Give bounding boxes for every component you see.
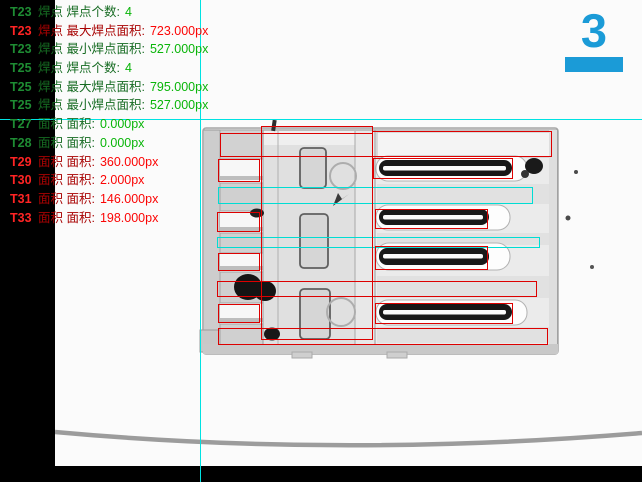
metric-label: 面积 面积: — [38, 211, 95, 225]
tool-id: T28 — [10, 134, 38, 153]
metric-value: 795.000px — [150, 80, 208, 94]
metric-label: 焊点 焊点个数: — [38, 5, 120, 19]
red-roi-box[interactable] — [218, 328, 548, 345]
result-line: T33面积 面积:198.000px — [10, 209, 310, 228]
metric-value: 4 — [125, 5, 132, 19]
tool-id: T23 — [10, 22, 38, 41]
result-line: T25焊点 焊点个数:4 — [10, 59, 310, 78]
metric-value: 198.000px — [100, 211, 158, 225]
red-roi-box[interactable] — [217, 281, 537, 297]
result-line: T29面积 面积:360.000px — [10, 153, 310, 172]
metric-value: 360.000px — [100, 155, 158, 169]
metric-value: 527.000px — [150, 98, 208, 112]
tool-id: T30 — [10, 171, 38, 190]
camera-number: 3 — [565, 8, 623, 54]
result-line: T27面积 面积:0.000px — [10, 115, 310, 134]
metric-value: 723.000px — [150, 24, 208, 38]
measurement-results-panel: T23焊点 焊点个数:4T23焊点 最大焊点面积:723.000pxT23焊点 … — [10, 3, 310, 227]
tool-id: T31 — [10, 190, 38, 209]
camera-number-indicator: 3 — [565, 8, 623, 72]
tool-id: T29 — [10, 153, 38, 172]
tool-id: T27 — [10, 115, 38, 134]
metric-label: 焊点 最小焊点面积: — [38, 98, 145, 112]
result-line: T28面积 面积:0.000px — [10, 134, 310, 153]
tool-id: T33 — [10, 209, 38, 228]
inspection-viewport: T23焊点 焊点个数:4T23焊点 最大焊点面积:723.000pxT23焊点 … — [0, 0, 642, 482]
red-roi-box[interactable] — [218, 253, 260, 271]
metric-value: 4 — [125, 61, 132, 75]
red-roi-box[interactable] — [375, 303, 513, 324]
metric-value: 146.000px — [100, 192, 158, 206]
result-line: T23焊点 焊点个数:4 — [10, 3, 310, 22]
metric-value: 0.000px — [100, 117, 144, 131]
metric-label: 面积 面积: — [38, 117, 95, 131]
result-line: T25焊点 最大焊点面积:795.000px — [10, 78, 310, 97]
result-line: T23焊点 最小焊点面积:527.000px — [10, 40, 310, 59]
tool-id: T25 — [10, 59, 38, 78]
metric-label: 面积 面积: — [38, 192, 95, 206]
result-line: T30面积 面积:2.000px — [10, 171, 310, 190]
red-roi-box[interactable] — [375, 246, 488, 270]
indicator-underline-bar — [565, 57, 623, 72]
tool-id: T23 — [10, 40, 38, 59]
metric-label: 面积 面积: — [38, 155, 95, 169]
tool-id: T25 — [10, 78, 38, 97]
metric-label: 面积 面积: — [38, 173, 95, 187]
metric-value: 0.000px — [100, 136, 144, 150]
metric-label: 焊点 最小焊点面积: — [38, 42, 145, 56]
metric-label: 面积 面积: — [38, 136, 95, 150]
red-roi-box[interactable] — [373, 158, 513, 179]
result-line: T25焊点 最小焊点面积:527.000px — [10, 96, 310, 115]
result-line: T23焊点 最大焊点面积:723.000px — [10, 22, 310, 41]
field-edge-arc — [55, 432, 642, 445]
metric-value: 527.000px — [150, 42, 208, 56]
tool-id: T23 — [10, 3, 38, 22]
tool-id: T25 — [10, 96, 38, 115]
result-line: T31面积 面积:146.000px — [10, 190, 310, 209]
red-roi-box[interactable] — [375, 209, 488, 229]
metric-label: 焊点 最大焊点面积: — [38, 80, 145, 94]
red-roi-box[interactable] — [372, 131, 552, 157]
red-roi-box[interactable] — [218, 304, 260, 323]
metric-label: 焊点 最大焊点面积: — [38, 24, 145, 38]
metric-value: 2.000px — [100, 173, 144, 187]
metric-label: 焊点 焊点个数: — [38, 61, 120, 75]
